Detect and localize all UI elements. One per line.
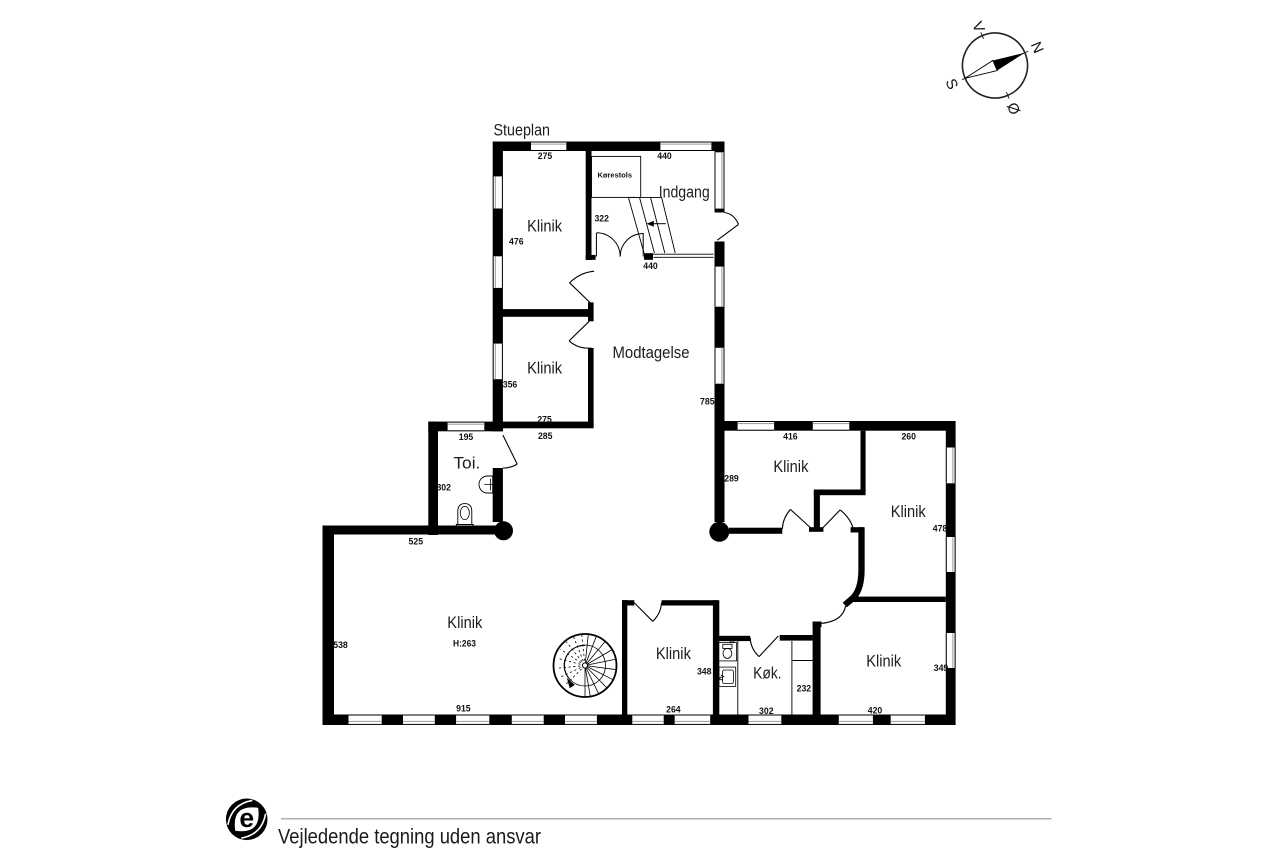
svg-text:420: 420 [868,706,883,717]
svg-text:285: 285 [538,431,553,442]
svg-text:348: 348 [697,667,712,678]
svg-text:264: 264 [666,705,681,716]
svg-text:538: 538 [333,640,348,651]
svg-text:Klinik: Klinik [527,218,563,236]
svg-text:275: 275 [537,415,552,426]
svg-text:302: 302 [436,483,451,494]
svg-text:195: 195 [459,432,474,443]
svg-text:440: 440 [657,151,672,162]
svg-text:Klinik: Klinik [656,645,692,663]
svg-text:Indgang: Indgang [659,184,710,202]
svg-text:302: 302 [759,706,774,717]
svg-text:Klinik: Klinik [527,360,563,378]
svg-text:Klinik: Klinik [891,503,927,521]
svg-text:e: e [239,803,254,833]
svg-text:322: 322 [594,213,609,224]
svg-text:Stueplan: Stueplan [494,122,551,140]
svg-text:356: 356 [503,380,518,391]
svg-text:H:263: H:263 [453,639,476,650]
svg-text:Klinik: Klinik [773,458,809,476]
svg-text:Toi.: Toi. [453,455,480,473]
svg-text:478: 478 [933,524,948,535]
svg-text:349: 349 [934,663,949,674]
svg-text:525: 525 [409,537,424,548]
svg-text:Klinik: Klinik [866,653,902,671]
svg-text:Vejledende tegning uden ansvar: Vejledende tegning uden ansvar [278,825,541,849]
svg-text:Køk.: Køk. [753,665,782,683]
svg-text:440: 440 [643,261,658,272]
svg-text:260: 260 [901,431,916,442]
svg-text:289: 289 [724,474,739,485]
svg-text:915: 915 [456,704,471,715]
svg-text:785: 785 [700,397,715,408]
svg-text:Kørestols: Kørestols [598,170,633,179]
svg-text:Modtagelse: Modtagelse [613,344,690,362]
svg-text:476: 476 [509,237,524,248]
svg-text:275: 275 [538,151,553,162]
svg-text:Klinik: Klinik [447,614,483,632]
svg-text:416: 416 [783,431,798,442]
svg-text:232: 232 [797,684,812,695]
